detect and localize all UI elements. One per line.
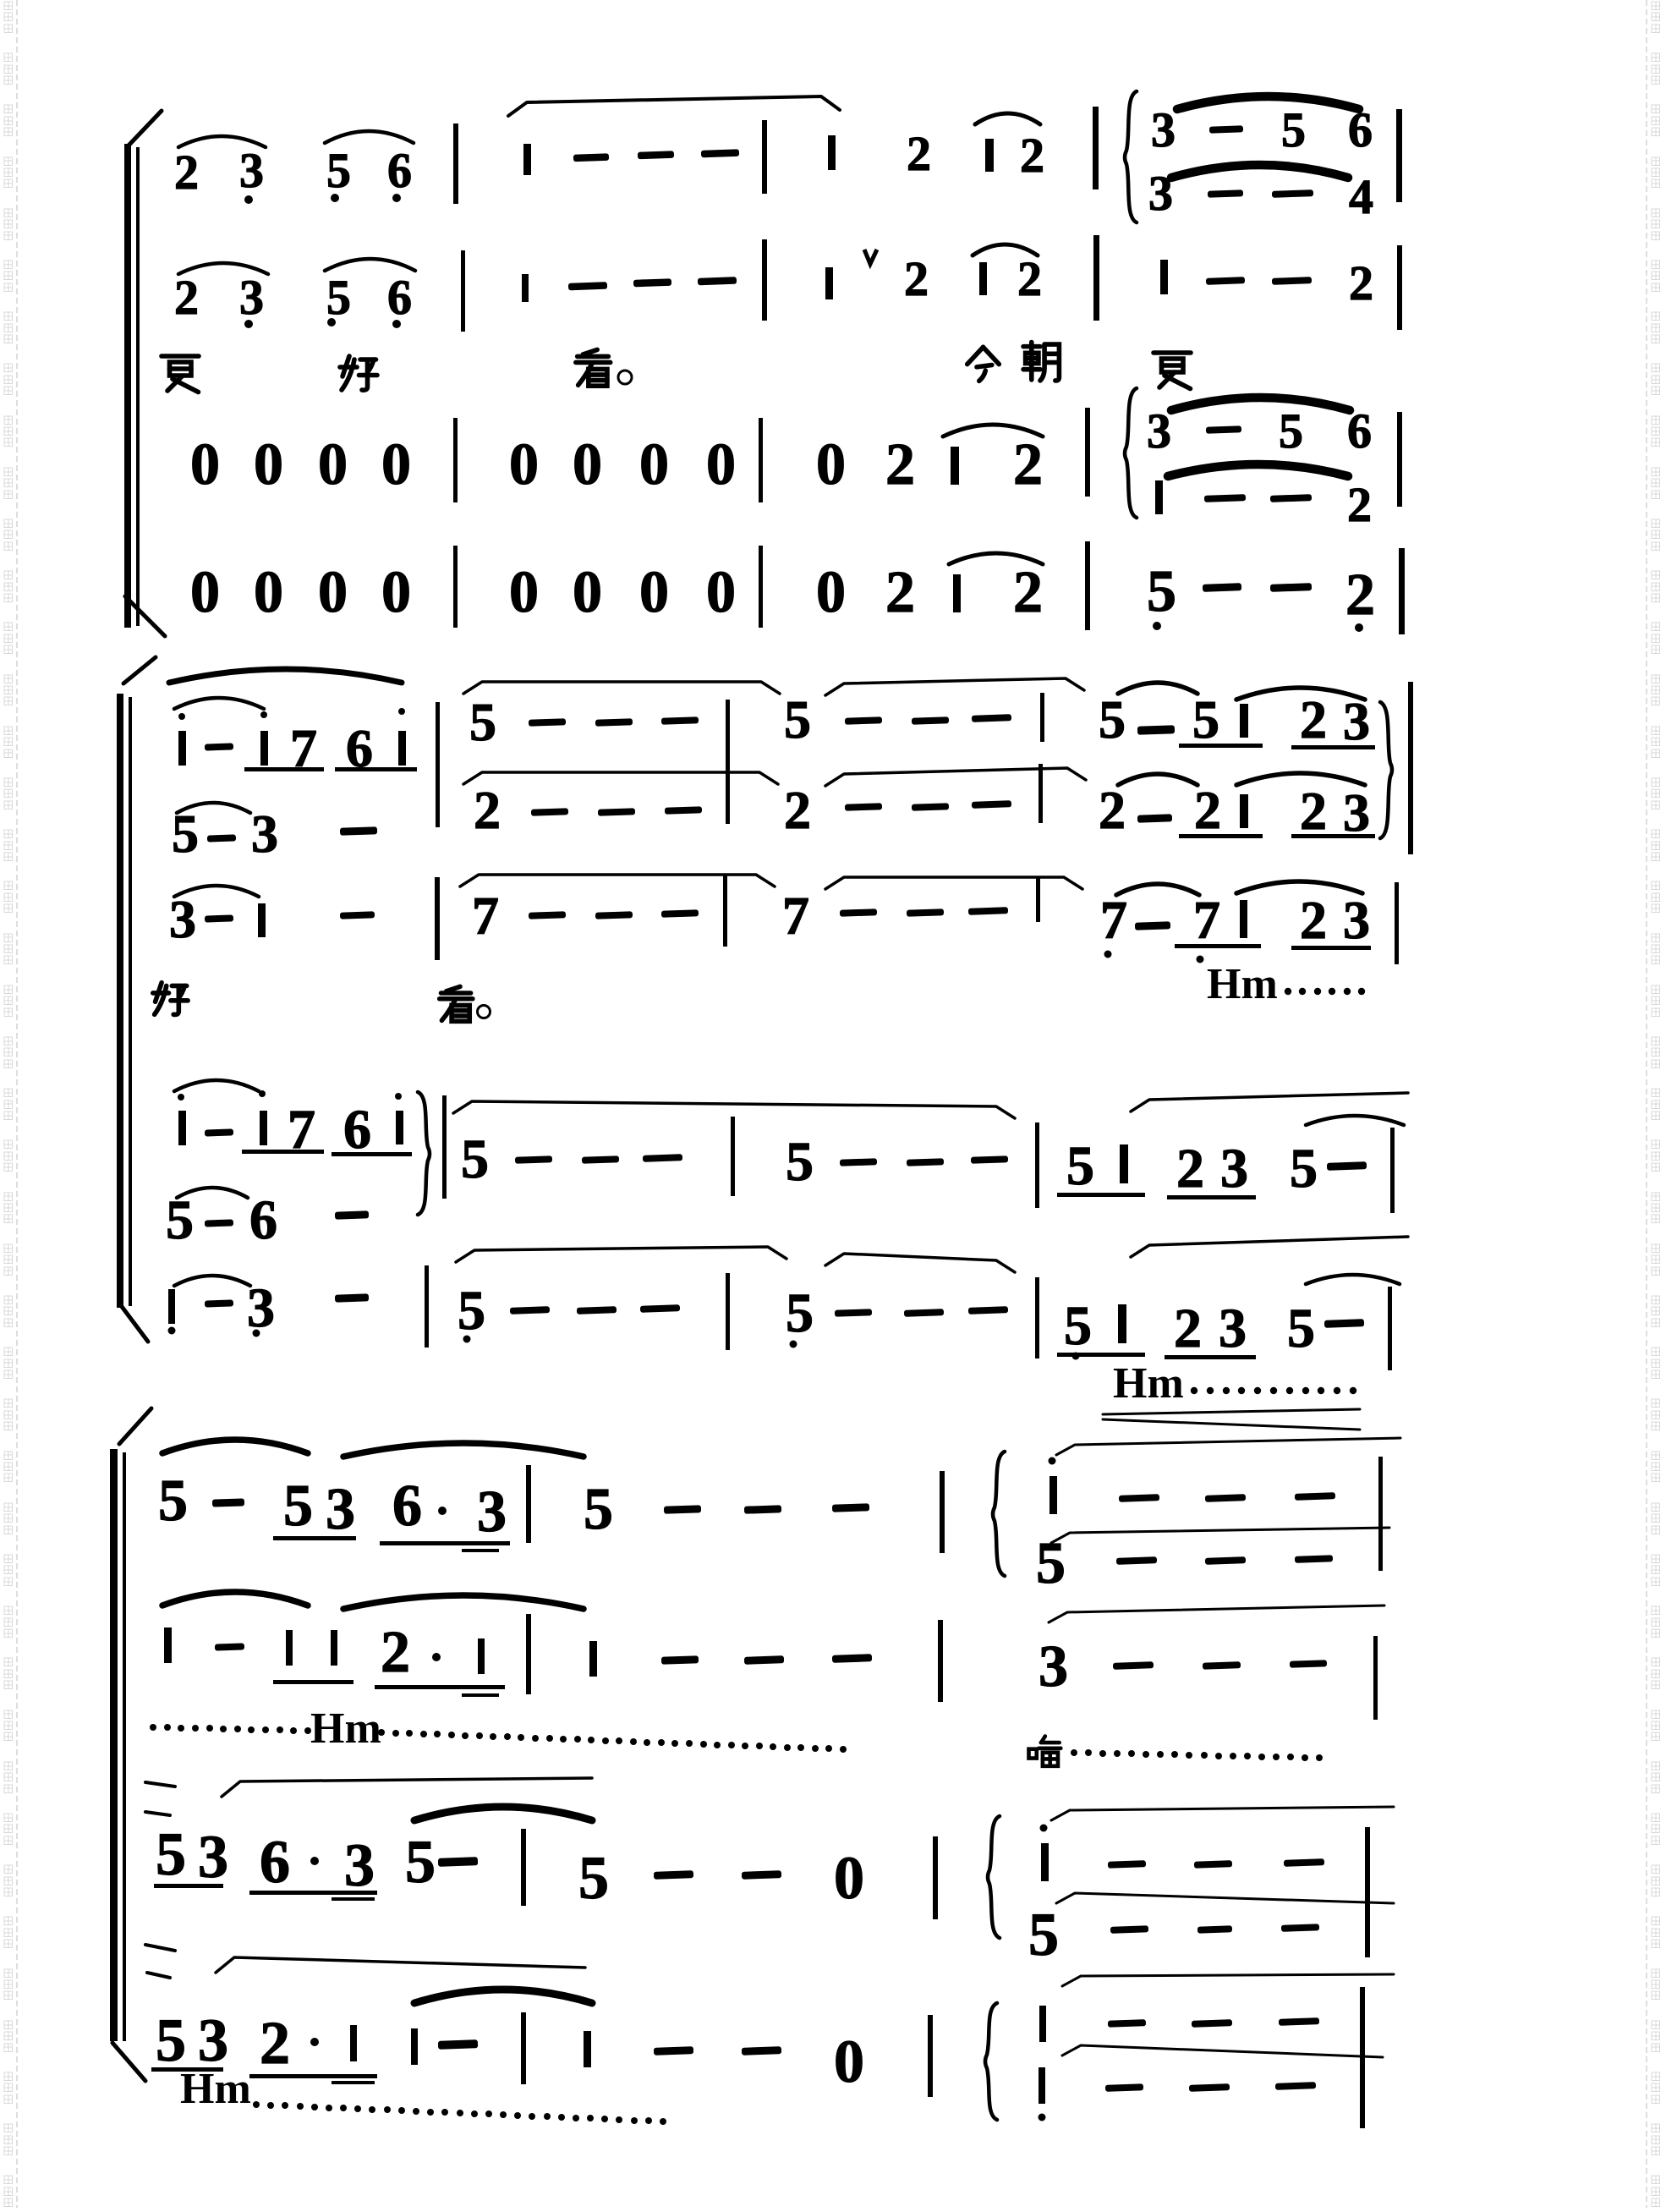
svg-text:6: 6 — [343, 1099, 371, 1161]
svg-text:5: 5 — [158, 1468, 188, 1534]
svg-text:0: 0 — [639, 432, 669, 497]
svg-text:3: 3 — [1039, 1634, 1068, 1699]
svg-text:0: 0 — [318, 432, 348, 497]
svg-text:3: 3 — [251, 804, 278, 864]
svg-text:3: 3 — [239, 270, 264, 325]
svg-text:0: 0 — [381, 560, 411, 625]
svg-text:5: 5 — [786, 1131, 814, 1193]
svg-text:0: 0 — [190, 560, 220, 625]
svg-text:5: 5 — [166, 1189, 194, 1251]
svg-text:2: 2 — [174, 270, 199, 325]
svg-text:2: 2 — [1345, 563, 1375, 628]
svg-text:3: 3 — [198, 1823, 228, 1891]
svg-text:6: 6 — [260, 1828, 290, 1896]
svg-text:5: 5 — [786, 1282, 814, 1344]
svg-text:5: 5 — [458, 1280, 485, 1342]
svg-text:2: 2 — [1176, 1138, 1204, 1199]
svg-text:7: 7 — [472, 886, 499, 946]
svg-text:Hm: Hm — [180, 2065, 251, 2113]
svg-text:5: 5 — [469, 692, 496, 752]
svg-text:7: 7 — [782, 886, 809, 946]
svg-text:5: 5 — [1281, 102, 1306, 157]
svg-text:2: 2 — [1300, 890, 1327, 950]
svg-text:0: 0 — [706, 560, 736, 625]
svg-text:0: 0 — [509, 560, 539, 625]
svg-text:2: 2 — [784, 780, 811, 840]
svg-text:2: 2 — [1020, 128, 1044, 183]
svg-text:0: 0 — [834, 2028, 864, 2095]
svg-text:6: 6 — [387, 270, 412, 325]
svg-text:0: 0 — [254, 560, 283, 625]
svg-text:0: 0 — [190, 432, 220, 497]
svg-text:5: 5 — [784, 689, 811, 749]
svg-text:7: 7 — [1100, 890, 1127, 950]
svg-text:3: 3 — [344, 1831, 375, 1899]
svg-text:2: 2 — [260, 2009, 290, 2077]
svg-text:2: 2 — [1013, 560, 1043, 625]
svg-text:0: 0 — [381, 432, 411, 497]
svg-text:2: 2 — [885, 432, 915, 497]
svg-text:5: 5 — [405, 1828, 436, 1896]
svg-text:0: 0 — [639, 560, 669, 625]
svg-text:0: 0 — [834, 1844, 864, 1912]
svg-text:4: 4 — [1349, 169, 1373, 224]
svg-text:2: 2 — [1300, 689, 1327, 749]
svg-text:2: 2 — [907, 126, 931, 181]
svg-text:5: 5 — [1064, 1295, 1092, 1357]
svg-text:5: 5 — [1066, 1135, 1094, 1197]
svg-text:5: 5 — [1147, 559, 1176, 624]
svg-text:3: 3 — [239, 143, 264, 198]
svg-text:2: 2 — [904, 251, 929, 306]
svg-text:2: 2 — [1349, 255, 1373, 310]
svg-text:0: 0 — [706, 432, 736, 497]
svg-text:3: 3 — [477, 1479, 507, 1545]
svg-text:0: 0 — [573, 560, 602, 625]
svg-text:3: 3 — [198, 2006, 228, 2074]
svg-text:3: 3 — [1220, 1138, 1248, 1199]
svg-text:5: 5 — [1028, 1901, 1059, 1968]
svg-text:2: 2 — [381, 1620, 410, 1685]
svg-text:0: 0 — [318, 560, 348, 625]
svg-text:5: 5 — [1287, 1298, 1315, 1359]
svg-text:2: 2 — [1194, 780, 1221, 840]
svg-text:5: 5 — [326, 270, 351, 325]
svg-text:5: 5 — [326, 143, 351, 198]
svg-text:5: 5 — [1099, 689, 1126, 749]
svg-text:5: 5 — [578, 1844, 609, 1912]
svg-text:5: 5 — [283, 1474, 313, 1539]
svg-text:2: 2 — [1017, 251, 1042, 306]
svg-text:2: 2 — [1174, 1298, 1202, 1359]
svg-text:0: 0 — [254, 432, 283, 497]
svg-text:0: 0 — [816, 560, 846, 625]
svg-text:Hm: Hm — [1113, 1359, 1184, 1408]
svg-text:2: 2 — [1013, 432, 1043, 497]
svg-text:5: 5 — [584, 1477, 613, 1542]
svg-text:5: 5 — [1036, 1531, 1066, 1596]
svg-text:3: 3 — [1343, 782, 1370, 843]
svg-text:5: 5 — [1279, 403, 1303, 458]
svg-text:2: 2 — [174, 145, 199, 200]
svg-text:2: 2 — [1099, 780, 1126, 840]
svg-text:6: 6 — [387, 143, 412, 198]
svg-text:Hm: Hm — [1207, 960, 1278, 1008]
svg-text:5: 5 — [1192, 689, 1219, 749]
svg-text:2: 2 — [1347, 477, 1372, 532]
svg-text:7: 7 — [1193, 890, 1220, 950]
svg-text:6: 6 — [392, 1474, 422, 1539]
svg-text:0: 0 — [509, 432, 539, 497]
svg-text:3: 3 — [1219, 1298, 1247, 1359]
svg-text:0: 0 — [573, 432, 602, 497]
svg-text:2: 2 — [474, 780, 501, 840]
svg-text:3: 3 — [1151, 102, 1176, 157]
svg-text:0: 0 — [816, 432, 846, 497]
svg-text:5: 5 — [461, 1128, 489, 1190]
svg-text:6: 6 — [249, 1189, 277, 1251]
svg-text:5: 5 — [156, 2006, 186, 2074]
svg-text:Hm: Hm — [310, 1704, 381, 1753]
svg-text:5: 5 — [1290, 1138, 1318, 1199]
svg-text:3: 3 — [326, 1477, 355, 1542]
svg-text:3: 3 — [1343, 890, 1370, 950]
svg-text:2: 2 — [1300, 781, 1327, 841]
svg-text:5: 5 — [156, 1820, 186, 1888]
svg-text:2: 2 — [885, 560, 915, 625]
